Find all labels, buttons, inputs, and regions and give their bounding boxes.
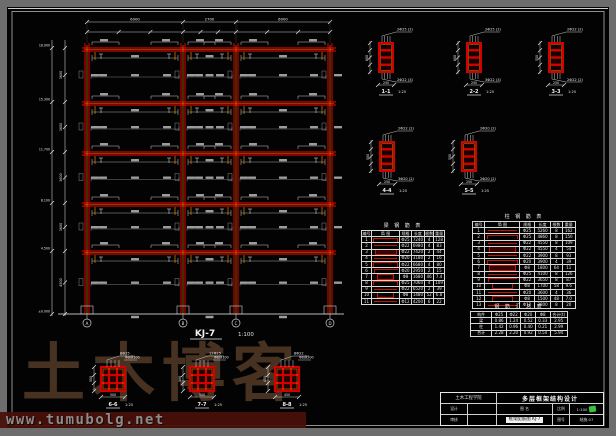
- dim-label: 1:25: [299, 403, 307, 407]
- dim-label: 450: [284, 393, 290, 397]
- rebar-sketch-hookbar: [372, 262, 399, 267]
- dim-label: 2Φ22 (2): [398, 127, 415, 131]
- rebar-summary-schedule: 构件Φ25Φ22Φ20Φ8合计(t)梁0.861.240.520.332.95柱…: [470, 311, 568, 337]
- rebar-sketch-lhook: [485, 278, 519, 283]
- rebar-sketch-bar: [485, 241, 519, 246]
- table-cell: [371, 268, 399, 274]
- dim-label: 18.900: [39, 44, 50, 48]
- dim-label: 2-2: [469, 89, 479, 95]
- column-rebar-schedule: 编号简 图规格长度根数重量1Φ25526081622Φ25486081503Φ2…: [472, 221, 576, 309]
- dim-label: 2Φ20 (2): [480, 177, 497, 181]
- table-cell: 合计: [471, 330, 492, 336]
- table-cell: [371, 249, 399, 255]
- dim-label: 600: [365, 55, 369, 61]
- rebar-sketch-bar: [372, 243, 399, 248]
- rebar-sketch-hookbar: [372, 281, 399, 286]
- rebar-sketch-frame: [485, 265, 519, 270]
- table-cell: [371, 261, 399, 267]
- beam-table-title: 梁 钢 筋 表: [361, 222, 445, 229]
- check-label: 审核: [441, 415, 468, 425]
- table-cell: 5.94: [550, 330, 567, 336]
- table-cell: [485, 265, 520, 271]
- rebar-sketch-bar: [485, 290, 519, 295]
- dim-label: ±0.000: [38, 310, 50, 314]
- dim-label: 2Φ22 (2): [567, 78, 584, 82]
- dim-label: 1:25: [481, 189, 489, 193]
- dim-label: 1:25: [125, 403, 133, 407]
- dim-label: Φ8@100: [214, 356, 229, 360]
- rebar-sketch-hookbar: [485, 259, 519, 264]
- summary-table-title: 钢 筋 汇 总 表: [470, 303, 568, 310]
- rebar-summary-table: 构件Φ25Φ22Φ20Φ8合计(t)梁0.861.240.520.332.95柱…: [470, 311, 568, 337]
- dim-label: 450: [263, 376, 267, 382]
- table-cell: 2.20: [506, 330, 521, 336]
- title-block-row1: 土木工程学院 多层框架结构设计: [441, 393, 603, 404]
- dim-label: 500: [110, 393, 116, 397]
- dim-label: 250: [553, 81, 559, 85]
- scale-label: 比例: [553, 404, 570, 414]
- sheet-no-value: 结施-07: [570, 415, 603, 425]
- design-label: 设计: [441, 404, 468, 414]
- beam-rebar-schedule: 编号简 图规格长度根数重量1Φ25724041282Φ2269804833Φ22…: [361, 230, 445, 305]
- table-cell: 6: [425, 299, 434, 305]
- sheet-name-chip: 框架配筋图 KJ-7: [506, 417, 544, 423]
- table-cell: 0.92: [521, 330, 536, 336]
- dim-label: A: [86, 321, 89, 326]
- dim-label: 2Φ25 (2): [397, 28, 414, 32]
- dim-label: 250: [384, 180, 390, 184]
- dim-label: 500: [178, 376, 182, 382]
- dim-label: 3600: [59, 173, 63, 181]
- table-cell: [485, 277, 520, 283]
- dim-label: 1:25: [399, 189, 407, 193]
- dim-label: B: [182, 321, 185, 326]
- sheet-name-cell: 框架配筋图 KJ-7: [497, 415, 553, 425]
- dim-label: 3600: [59, 223, 63, 231]
- dim-label: 500: [199, 393, 205, 397]
- rebar-sketch-bar: [372, 287, 399, 292]
- dim-label: 4-4: [382, 188, 392, 194]
- rebar-sketch-stirrup: [372, 274, 399, 279]
- table-cell: [371, 299, 399, 305]
- table-cell: [485, 259, 520, 265]
- column-rebar-table: 编号简 图规格长度根数重量1Φ25526081622Φ25486081503Φ2…: [472, 221, 576, 309]
- dim-label: 250: [466, 180, 472, 184]
- rebar-sketch-hookbar: [372, 237, 399, 242]
- watermark-url-bar: www.tumubolg.net: [0, 412, 306, 428]
- table-cell: [371, 237, 399, 243]
- dim-label: 2700: [205, 17, 215, 22]
- dim-label: 11.700: [39, 148, 50, 152]
- cad-viewer-window: 土木博客 60002700600018.90015.30011.7008.100…: [0, 0, 616, 436]
- dim-label: Φ8@200: [299, 356, 314, 360]
- dim-label: 4.500: [41, 247, 50, 251]
- dim-label: 2Φ20 (2): [480, 127, 497, 131]
- rebar-sketch-stirrup: [372, 293, 399, 298]
- dim-label: 1:25: [486, 90, 494, 94]
- dim-label: 600: [453, 55, 457, 61]
- dim-label: 250: [383, 81, 389, 85]
- dim-label: 250: [471, 81, 477, 85]
- table-cell: 22: [434, 299, 445, 305]
- dim-label: 1-1: [381, 89, 391, 95]
- table-row: 11Φ124200622: [362, 299, 445, 305]
- beam-section-1-1: 2Φ25 (2)2Φ22 (3)6002501-11:25: [365, 28, 414, 96]
- beam-section-3-3: 2Φ22 (2)2Φ22 (2)5502503-31:25: [535, 28, 584, 96]
- rebar-sketch-stirrup: [485, 296, 519, 301]
- title-block: 土木工程学院 多层框架结构设计 设计 图 名 比例 1:100 审核 框架配筋图…: [440, 392, 604, 426]
- table-cell: 2.28: [492, 330, 507, 336]
- table-cell: [485, 234, 520, 240]
- table-cell: Φ12: [400, 299, 412, 305]
- table-cell: 4200: [411, 299, 424, 305]
- dim-label: 2Φ22 (2): [567, 28, 584, 32]
- dim-label: 7-7: [197, 402, 207, 408]
- watermark-url: www.tumubolg.net: [0, 412, 165, 428]
- scale-value: 1:100: [577, 407, 588, 412]
- table-cell: 0.54: [535, 330, 550, 336]
- dim-label: 1:25: [214, 403, 222, 407]
- dim-label: C: [235, 321, 238, 326]
- rebar-sketch-bar: [485, 272, 519, 277]
- dim-label: 3Φ20 (2): [398, 177, 415, 181]
- checker-name: [468, 415, 497, 425]
- rebar-sketch-bar: [372, 299, 399, 304]
- dim-label: 3600: [59, 71, 63, 79]
- dim-label: 4500: [59, 278, 63, 286]
- dim-label: 8.100: [41, 199, 50, 203]
- rebar-sketch-frame: [485, 247, 519, 252]
- beam-section-2-2: 2Φ25 (2)3Φ22 (3)6002502-21:25: [453, 28, 502, 96]
- dim-label: 500: [366, 154, 370, 160]
- title-block-row3: 审核 框架配筋图 KJ-7 图号 结施-07: [441, 415, 603, 425]
- beam-section-4-4: 2Φ22 (2)3Φ20 (2)5002504-41:25: [366, 127, 415, 195]
- beam-section-5-5: 2Φ20 (2)2Φ20 (2)5002505-51:25: [448, 127, 497, 195]
- dim-label: 1:25: [568, 90, 576, 94]
- scale-value-cell: 1:100: [570, 404, 603, 414]
- beam-rebar-table: 编号简 图规格长度根数重量1Φ25724041282Φ2269804833Φ22…: [361, 230, 445, 305]
- dim-label: 3600: [59, 123, 63, 131]
- rebar-sketch-lhook: [372, 268, 399, 273]
- rebar-sketch-stirrup: [485, 284, 519, 289]
- rebar-sketch-frame: [372, 250, 399, 255]
- dim-label: 3Φ22 (3): [485, 78, 502, 82]
- designer-name: [468, 404, 497, 414]
- dim-label: 500: [448, 154, 452, 160]
- table-cell: [371, 280, 399, 286]
- dim-label: 2Φ25 (2): [485, 28, 502, 32]
- frame-elevation: 60002700600018.90015.30011.7008.1004.500…: [38, 17, 344, 340]
- sheet-no-label: 图号: [553, 415, 570, 425]
- dim-label: D: [328, 321, 331, 326]
- table-row: 合计2.282.200.920.545.94: [471, 330, 568, 336]
- rebar-sketch-bar: [485, 253, 519, 258]
- dim-label: 1:25: [398, 90, 406, 94]
- dim-label: 8-8: [282, 402, 292, 408]
- dim-label: 5-5: [464, 188, 474, 194]
- project-title: 多层框架结构设计: [497, 393, 603, 403]
- drawing-name-label: 图 名: [497, 404, 553, 414]
- org-name: 土木工程学院: [441, 393, 497, 403]
- column-section-7-7: 12Φ25Φ8@1005005007-71:25: [178, 352, 229, 409]
- title-block-row2: 设计 图 名 比例 1:100: [441, 404, 603, 415]
- green-stamp-icon: [589, 406, 597, 413]
- dim-label: KJ-7: [195, 329, 215, 339]
- dim-label: 3-3: [551, 89, 561, 95]
- dim-label: 500: [89, 376, 93, 382]
- rebar-sketch-bar: [372, 256, 399, 261]
- column-section-6-6: 8Φ25Φ8@1005005006-61:25: [89, 352, 140, 409]
- dim-label: 1:100: [238, 332, 254, 338]
- dim-label: 6-6: [108, 402, 118, 408]
- dim-label: Φ8@100: [125, 356, 140, 360]
- column-section-8-8: 8Φ22Φ8@2004504508-81:25: [263, 352, 314, 409]
- dim-label: 550: [535, 55, 539, 61]
- col-table-title: 柱 钢 筋 表: [472, 213, 576, 220]
- rebar-sketch-bar: [485, 228, 519, 233]
- table-cell: 11: [362, 299, 372, 305]
- dim-label: 6000: [130, 17, 140, 22]
- dim-label: 2Φ22 (3): [397, 78, 414, 82]
- rebar-sketch-hookbar: [485, 234, 519, 239]
- table-cell: [485, 246, 520, 252]
- dim-label: 15.300: [39, 98, 50, 102]
- dim-label: 6000: [278, 17, 288, 22]
